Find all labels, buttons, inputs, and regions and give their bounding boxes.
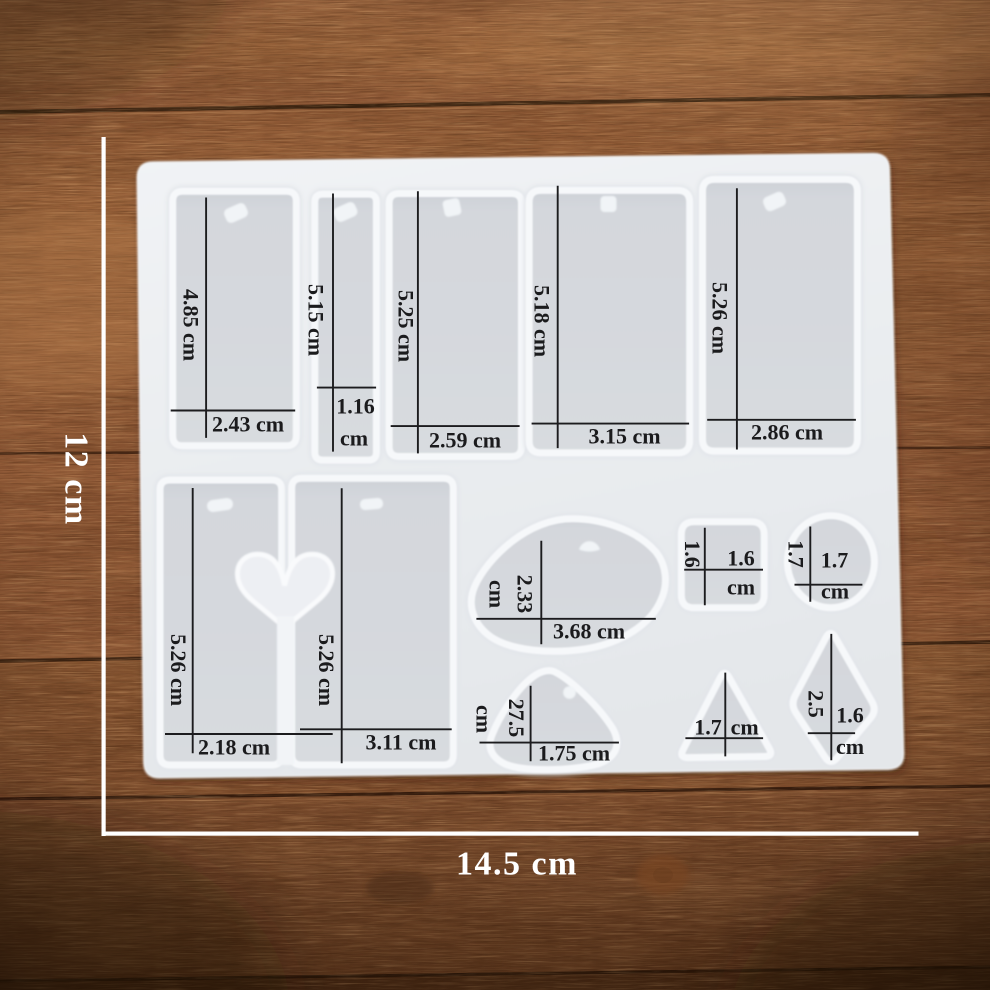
- svg-text:cm: cm: [731, 715, 759, 740]
- svg-text:27.5: 27.5: [504, 699, 529, 738]
- svg-text:2.86 cm: 2.86 cm: [751, 420, 823, 445]
- svg-text:cm: cm: [836, 734, 864, 759]
- svg-text:cm: cm: [472, 705, 497, 733]
- svg-text:1.7: 1.7: [783, 540, 808, 568]
- svg-text:2.5: 2.5: [804, 690, 829, 718]
- svg-text:1.75 cm: 1.75 cm: [538, 741, 610, 766]
- svg-text:cm: cm: [727, 575, 755, 600]
- svg-text:1.16: 1.16: [336, 394, 375, 419]
- svg-text:cm: cm: [821, 579, 849, 604]
- svg-text:1.7: 1.7: [821, 548, 849, 573]
- svg-text:1.7: 1.7: [694, 715, 722, 740]
- svg-text:4.85 cm: 4.85 cm: [179, 289, 204, 361]
- svg-text:5.26 cm: 5.26 cm: [314, 634, 339, 706]
- svg-text:5.25 cm: 5.25 cm: [394, 290, 419, 362]
- svg-text:cm: cm: [340, 426, 368, 451]
- svg-text:12 cm: 12 cm: [58, 432, 95, 525]
- svg-text:5.15 cm: 5.15 cm: [304, 284, 329, 356]
- svg-text:2.33: 2.33: [513, 575, 538, 614]
- svg-text:1.6: 1.6: [727, 546, 755, 571]
- svg-text:5.26 cm: 5.26 cm: [708, 282, 733, 354]
- svg-text:1.6: 1.6: [680, 540, 705, 568]
- svg-text:2.43 cm: 2.43 cm: [212, 412, 284, 437]
- svg-text:3.15 cm: 3.15 cm: [588, 424, 660, 449]
- svg-text:2.18 cm: 2.18 cm: [198, 735, 270, 760]
- svg-text:3.68 cm: 3.68 cm: [553, 619, 625, 644]
- svg-text:1.6: 1.6: [836, 703, 864, 728]
- svg-text:14.5 cm: 14.5 cm: [456, 846, 578, 883]
- svg-text:5.18 cm: 5.18 cm: [530, 285, 555, 357]
- svg-text:3.11 cm: 3.11 cm: [366, 730, 437, 755]
- svg-text:5.26 cm: 5.26 cm: [166, 634, 191, 706]
- svg-text:cm: cm: [485, 580, 510, 608]
- svg-text:2.59 cm: 2.59 cm: [429, 428, 501, 453]
